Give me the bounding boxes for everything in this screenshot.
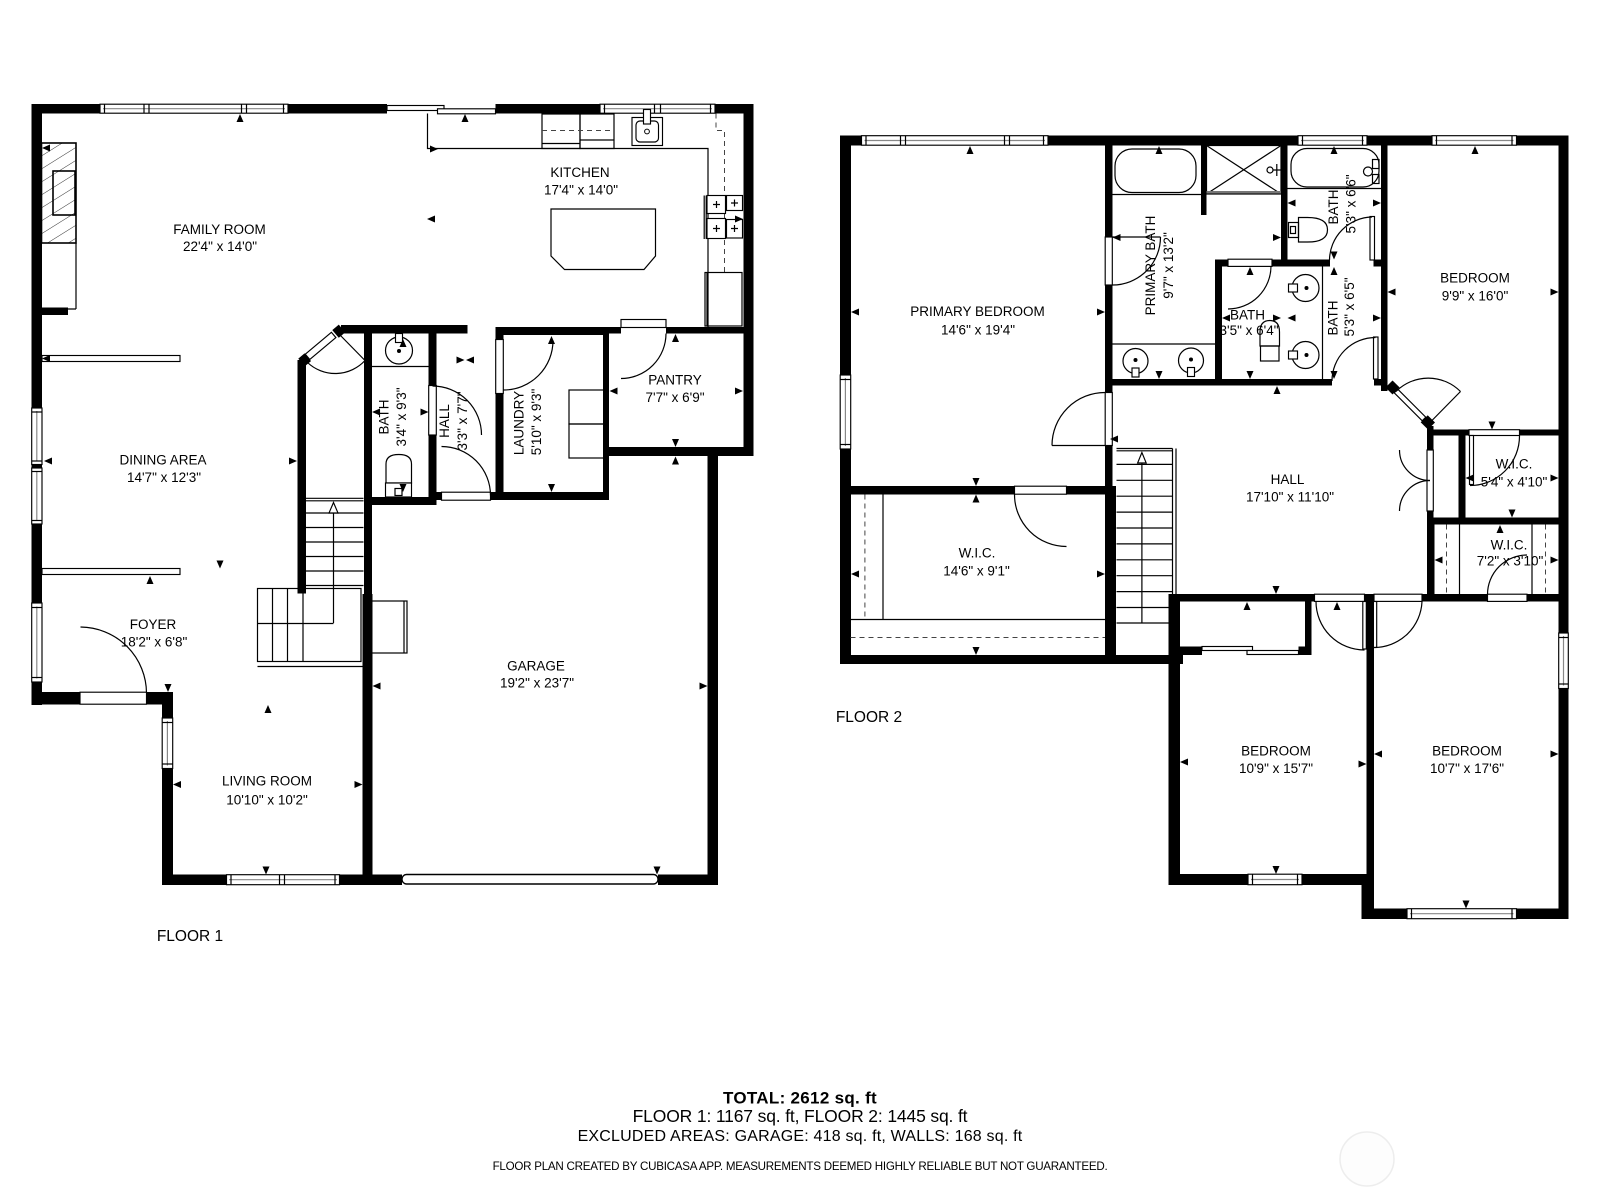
svg-text:10'9" x 15'7": 10'9" x 15'7" — [1239, 761, 1313, 776]
svg-text:7'2" x 3'10": 7'2" x 3'10" — [1477, 554, 1544, 569]
svg-text:FAMILY ROOM: FAMILY ROOM — [173, 222, 266, 237]
svg-text:FOYER: FOYER — [130, 617, 177, 632]
svg-text:BATH: BATH — [1326, 189, 1341, 224]
svg-text:10'10" x 10'2": 10'10" x 10'2" — [226, 793, 308, 808]
svg-text:BATH: BATH — [1230, 308, 1265, 323]
svg-text:10'7" x 17'6": 10'7" x 17'6" — [1430, 761, 1504, 776]
svg-text:LIVING ROOM: LIVING ROOM — [222, 774, 312, 789]
svg-text:BEDROOM: BEDROOM — [1241, 744, 1311, 759]
svg-text:PRIMARY BATH: PRIMARY BATH — [1143, 216, 1158, 316]
svg-text:3'5" x 6'4": 3'5" x 6'4" — [1219, 323, 1278, 338]
svg-text:5'3" x 6'6": 5'3" x 6'6" — [1344, 174, 1359, 233]
svg-text:BEDROOM: BEDROOM — [1432, 744, 1502, 759]
svg-text:17'4" x 14'0": 17'4" x 14'0" — [544, 183, 618, 198]
svg-text:3'3" x 7'7": 3'3" x 7'7" — [455, 391, 470, 450]
svg-text:KITCHEN: KITCHEN — [550, 165, 609, 180]
svg-text:FLOOR PLAN CREATED BY CUBICASA: FLOOR PLAN CREATED BY CUBICASA APP. MEAS… — [493, 1160, 1108, 1173]
svg-text:19'2" x 23'7": 19'2" x 23'7" — [500, 676, 574, 691]
svg-text:TOTAL: 2612 sq. ft: TOTAL: 2612 sq. ft — [723, 1089, 877, 1108]
svg-text:W.I.C.: W.I.C. — [1491, 538, 1528, 553]
svg-text:18'2" x 6'8": 18'2" x 6'8" — [121, 635, 188, 650]
svg-text:PANTRY: PANTRY — [648, 373, 702, 388]
svg-text:BATH: BATH — [377, 399, 392, 434]
svg-text:14'6" x 19'4": 14'6" x 19'4" — [941, 323, 1015, 338]
svg-text:FLOOR 1: FLOOR 1 — [157, 928, 223, 945]
svg-text:LAUNDRY: LAUNDRY — [512, 391, 527, 455]
svg-text:22'4" x 14'0": 22'4" x 14'0" — [183, 239, 257, 254]
svg-text:14'6" x 9'1": 14'6" x 9'1" — [943, 564, 1010, 579]
svg-text:5'10" x 9'3": 5'10" x 9'3" — [529, 389, 544, 456]
svg-text:GARAGE: GARAGE — [507, 659, 565, 674]
svg-text:5'3" x 6'5": 5'3" x 6'5" — [1342, 277, 1357, 336]
svg-text:HALL: HALL — [1271, 472, 1305, 487]
svg-text:3'4" x 9'3": 3'4" x 9'3" — [394, 387, 409, 446]
svg-text:17'10" x 11'10": 17'10" x 11'10" — [1246, 490, 1334, 505]
svg-text:BATH: BATH — [1326, 300, 1341, 335]
svg-text:HALL: HALL — [437, 404, 452, 438]
svg-text:FLOOR 1: 1167 sq. ft, FLOOR 2:: FLOOR 1: 1167 sq. ft, FLOOR 2: 1445 sq. … — [633, 1106, 968, 1126]
svg-text:9'7" x 13'2": 9'7" x 13'2" — [1161, 232, 1176, 299]
svg-text:DINING AREA: DINING AREA — [119, 453, 206, 468]
svg-text:5'4" x 4'10": 5'4" x 4'10" — [1481, 475, 1548, 490]
svg-text:7'7" x 6'9": 7'7" x 6'9" — [645, 390, 704, 405]
svg-text:PRIMARY BEDROOM: PRIMARY BEDROOM — [910, 304, 1045, 319]
svg-text:W.I.C.: W.I.C. — [959, 546, 996, 561]
svg-text:9'9" x 16'0": 9'9" x 16'0" — [1442, 289, 1509, 304]
svg-text:FLOOR 2: FLOOR 2 — [836, 709, 902, 726]
svg-text:W.I.C.: W.I.C. — [1496, 457, 1533, 472]
svg-text:14'7" x 12'3": 14'7" x 12'3" — [127, 470, 201, 485]
svg-text:EXCLUDED AREAS: GARAGE: 418 sq: EXCLUDED AREAS: GARAGE: 418 sq. ft, WALL… — [578, 1128, 1023, 1145]
svg-text:BEDROOM: BEDROOM — [1440, 271, 1510, 286]
